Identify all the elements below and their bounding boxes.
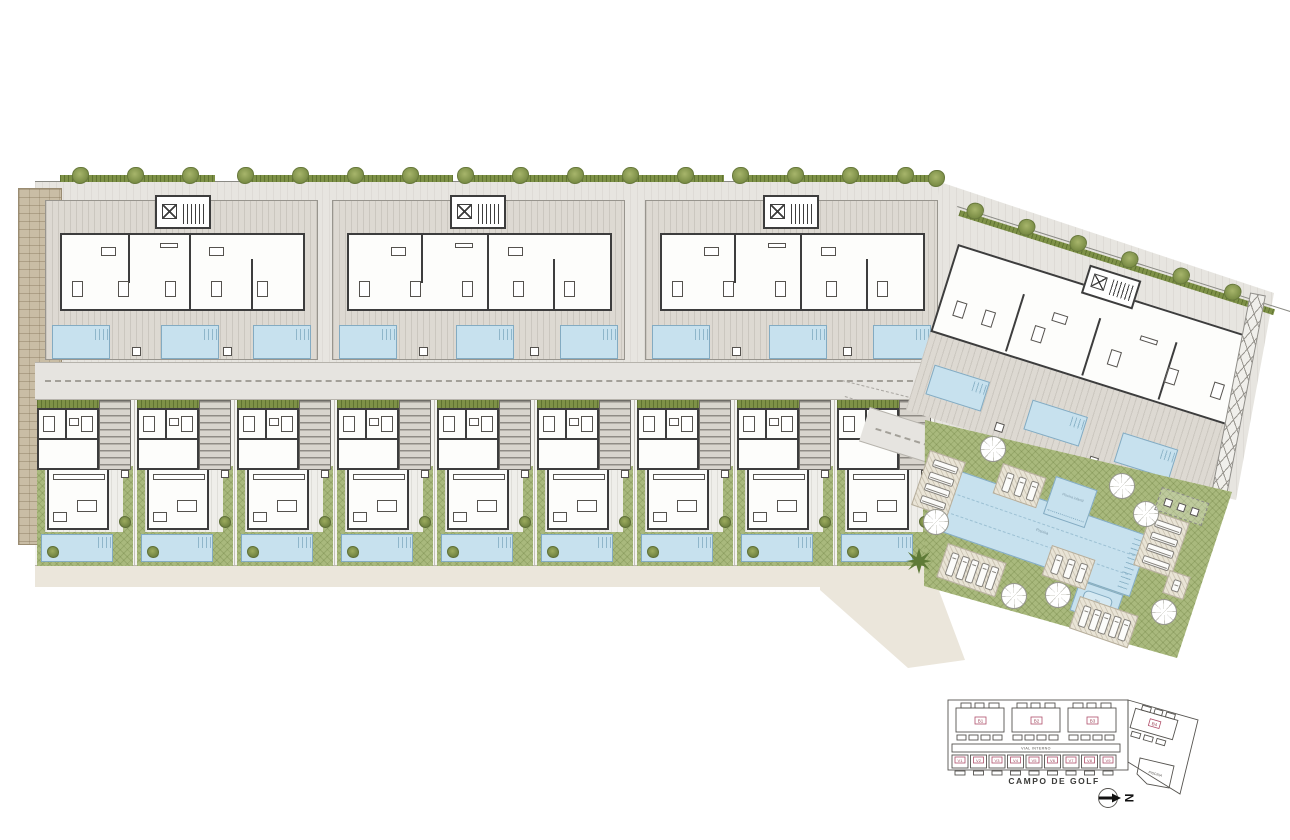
keymap-villa-garden bbox=[1011, 771, 1021, 775]
kitchen-counter-icon bbox=[553, 474, 605, 480]
sun-lounger-icon bbox=[1074, 562, 1088, 584]
sofa-icon bbox=[453, 512, 467, 522]
keymap-villa-label: V8 bbox=[1087, 758, 1093, 763]
keymap-terrace bbox=[1037, 735, 1046, 740]
interior-wall bbox=[365, 410, 367, 438]
shrub-icon bbox=[47, 546, 59, 558]
kitchen-counter-icon bbox=[768, 243, 786, 248]
dining-table-icon bbox=[1051, 312, 1068, 325]
bed-icon bbox=[581, 416, 593, 432]
block-core bbox=[763, 195, 819, 229]
bed-icon bbox=[481, 416, 493, 432]
north-letter: N bbox=[1122, 794, 1136, 803]
keymap-villa-label: V4 bbox=[1013, 758, 1019, 763]
interior-wall bbox=[339, 438, 397, 440]
bed-icon bbox=[826, 281, 837, 297]
bed-icon bbox=[952, 300, 967, 319]
interior-wall bbox=[665, 410, 667, 438]
shrub-icon bbox=[719, 516, 731, 528]
golf-course-label: CAMPO DE GOLF bbox=[1008, 776, 1099, 786]
villa-hedge bbox=[437, 400, 499, 408]
villa-living-block bbox=[47, 468, 109, 530]
elevator-icon bbox=[162, 204, 177, 219]
kitchen-counter-icon bbox=[1140, 335, 1159, 345]
villa-divider bbox=[234, 400, 235, 565]
dining-table-icon bbox=[77, 500, 97, 512]
pool-steps bbox=[95, 329, 108, 340]
villa-divider bbox=[734, 400, 735, 565]
bed-icon bbox=[443, 416, 455, 432]
keymap-terrace bbox=[1013, 735, 1022, 740]
interior-wall bbox=[39, 438, 97, 440]
villa-stairs bbox=[599, 400, 631, 470]
villa-bedroom-block bbox=[437, 408, 499, 470]
bed-icon bbox=[877, 281, 888, 297]
villa-living-block bbox=[647, 468, 709, 530]
keymap-villa-garden bbox=[1048, 771, 1058, 775]
shrub-icon bbox=[247, 546, 259, 558]
kitchen-counter-icon bbox=[853, 474, 905, 480]
apartment-block-1 bbox=[45, 200, 318, 360]
keymap-block-bump bbox=[989, 703, 999, 708]
villa-bedroom-block bbox=[237, 408, 299, 470]
pool-steps bbox=[598, 537, 611, 548]
bed-icon bbox=[211, 281, 222, 297]
bed-icon bbox=[81, 416, 93, 432]
dining-table-icon bbox=[477, 500, 497, 512]
bed-icon bbox=[643, 416, 655, 432]
villa-divider bbox=[334, 400, 335, 565]
dining-table-icon bbox=[508, 247, 523, 256]
villa-living-block bbox=[247, 468, 309, 530]
interior-wall bbox=[639, 438, 697, 440]
kitchen-counter-icon bbox=[253, 474, 305, 480]
apartment-block-2 bbox=[332, 200, 625, 360]
keymap-terrace bbox=[993, 735, 1002, 740]
villa-stairs bbox=[499, 400, 531, 470]
shrub-icon bbox=[419, 516, 431, 528]
keymap-villa-garden bbox=[992, 771, 1002, 775]
keymap-villa-garden bbox=[1066, 771, 1076, 775]
keymap-block-label: B2 bbox=[1034, 719, 1040, 724]
villa-hedge bbox=[837, 400, 899, 408]
bed-icon bbox=[165, 281, 176, 297]
gym-equipment-icon bbox=[1163, 498, 1173, 508]
villa-hedge bbox=[637, 400, 699, 408]
villa-bedroom-block bbox=[637, 408, 699, 470]
villa-living-block bbox=[147, 468, 209, 530]
keymap-villa-label: V5 bbox=[1032, 758, 1038, 763]
elevator-icon bbox=[457, 204, 472, 219]
interior-wall bbox=[239, 438, 297, 440]
keymap-terrace bbox=[957, 735, 966, 740]
keymap-villa-label: V2 bbox=[976, 758, 982, 763]
villa-bedroom-block bbox=[537, 408, 599, 470]
sofa-icon bbox=[753, 512, 767, 522]
keymap-terrace bbox=[1105, 735, 1114, 740]
apartment-slab bbox=[347, 233, 612, 311]
pool-steps bbox=[1160, 449, 1175, 462]
pool-steps bbox=[198, 537, 211, 548]
bath-icon bbox=[169, 418, 179, 426]
pool-steps bbox=[971, 381, 986, 394]
bath-icon bbox=[469, 418, 479, 426]
keymap-outline-wing bbox=[1128, 700, 1198, 794]
parasol-icon bbox=[1001, 583, 1027, 609]
shrub-icon bbox=[447, 546, 459, 558]
villa-hedge bbox=[37, 400, 99, 408]
keymap-block-bump bbox=[975, 703, 984, 708]
pool-steps bbox=[898, 537, 911, 548]
parasol-icon bbox=[1151, 599, 1177, 625]
interior-wall bbox=[553, 259, 555, 309]
planter bbox=[530, 347, 539, 356]
site-plan: PiscinaPiscina infantilSpaB1B2B3VIAL INT… bbox=[0, 0, 1290, 840]
gym-equipment-icon bbox=[1190, 507, 1200, 517]
interior-wall bbox=[165, 410, 167, 438]
kitchen-counter-icon bbox=[455, 243, 473, 248]
keymap-villa-label: V3 bbox=[995, 758, 1001, 763]
pool-steps bbox=[499, 329, 512, 340]
interior-wall bbox=[465, 410, 467, 438]
bed-icon bbox=[257, 281, 268, 297]
terrace-pool bbox=[560, 325, 618, 359]
shrub-icon bbox=[147, 546, 159, 558]
planter bbox=[621, 470, 629, 478]
keymap-pool-label: PISCINA bbox=[1148, 770, 1163, 778]
pool-steps bbox=[603, 329, 616, 340]
keymap-villa-label: V7 bbox=[1069, 758, 1075, 763]
shrub-icon bbox=[747, 546, 759, 558]
block-core bbox=[155, 195, 211, 229]
interior-wall bbox=[65, 410, 67, 438]
terrace-pool bbox=[52, 325, 110, 359]
parasol-icon bbox=[1109, 473, 1135, 499]
bed-icon bbox=[243, 416, 255, 432]
keymap-terrace bbox=[969, 735, 978, 740]
pool-steps bbox=[498, 537, 511, 548]
interior-wall bbox=[251, 259, 253, 309]
keymap-block-bump bbox=[961, 703, 971, 708]
pool-steps bbox=[695, 329, 708, 340]
interior-wall bbox=[421, 235, 423, 283]
pool-steps bbox=[98, 537, 111, 548]
interior-wall bbox=[128, 235, 130, 283]
bath-icon bbox=[69, 418, 79, 426]
terrace-pool bbox=[456, 325, 514, 359]
dining-table-icon bbox=[277, 500, 297, 512]
bed-icon bbox=[143, 416, 155, 432]
parasol-icon bbox=[980, 436, 1006, 462]
shrub-icon bbox=[119, 516, 131, 528]
interior-wall bbox=[265, 410, 267, 438]
pool-steps bbox=[798, 537, 811, 548]
keymap-terrace bbox=[1049, 735, 1058, 740]
villa-stairs bbox=[699, 400, 731, 470]
interior-wall bbox=[189, 235, 191, 309]
interior-wall bbox=[1005, 294, 1025, 352]
bath-icon bbox=[769, 418, 779, 426]
pool-steps bbox=[382, 329, 395, 340]
keymap-block4-group: B4 bbox=[1128, 704, 1179, 748]
villa-stairs bbox=[399, 400, 431, 470]
terrace-pool bbox=[339, 325, 397, 359]
bed-icon bbox=[118, 281, 129, 297]
villa-divider bbox=[834, 400, 835, 565]
bed-icon bbox=[462, 281, 473, 297]
bed-icon bbox=[72, 281, 83, 297]
villa-stairs bbox=[799, 400, 831, 470]
keymap-block-bump bbox=[1031, 703, 1040, 708]
keymap-block-bump bbox=[1017, 703, 1027, 708]
keymap-block-label: B3 bbox=[1090, 719, 1096, 724]
villa-hedge bbox=[737, 400, 799, 408]
walkway-south bbox=[35, 565, 935, 587]
sun-lounger-icon bbox=[1170, 579, 1181, 593]
sun-lounger-icon bbox=[1062, 558, 1076, 580]
planter bbox=[121, 470, 129, 478]
planter bbox=[721, 470, 729, 478]
planter bbox=[732, 347, 741, 356]
kitchen-counter-icon bbox=[453, 474, 505, 480]
villa-divider bbox=[134, 400, 135, 565]
bath-icon bbox=[369, 418, 379, 426]
keymap-terrace bbox=[1143, 735, 1153, 742]
kids-pool-label: Piscina infantil bbox=[1051, 489, 1092, 511]
core-stairs-icon bbox=[478, 204, 502, 224]
kitchen-counter-icon bbox=[160, 243, 178, 248]
bed-icon bbox=[381, 416, 393, 432]
planter bbox=[221, 470, 229, 478]
villa-living-block bbox=[747, 468, 809, 530]
kitchen-counter-icon bbox=[653, 474, 705, 480]
keymap-villa-label: V6 bbox=[1050, 758, 1056, 763]
keymap-terrace bbox=[1156, 738, 1166, 745]
shrub-icon bbox=[519, 516, 531, 528]
planter bbox=[421, 470, 429, 478]
shrub-icon bbox=[219, 516, 231, 528]
core-stairs-icon bbox=[791, 204, 815, 224]
interior-wall bbox=[866, 259, 868, 309]
bed-icon bbox=[781, 416, 793, 432]
terrace-pool bbox=[652, 325, 710, 359]
interior-wall bbox=[539, 438, 597, 440]
bed-icon bbox=[543, 416, 555, 432]
sofa-icon bbox=[153, 512, 167, 522]
bed-icon bbox=[281, 416, 293, 432]
interior-wall bbox=[565, 410, 567, 438]
keymap-villa-label: V9 bbox=[1106, 758, 1112, 763]
shrub-icon bbox=[819, 516, 831, 528]
villa-divider bbox=[534, 400, 535, 565]
interior-wall bbox=[487, 235, 489, 309]
villa-divider bbox=[634, 400, 635, 565]
villa-hedge bbox=[237, 400, 299, 408]
dining-table-icon bbox=[821, 247, 836, 256]
bed-icon bbox=[410, 281, 421, 297]
kitchen-counter-icon bbox=[353, 474, 405, 480]
keymap-terrace bbox=[1131, 731, 1141, 738]
keymap-terrace bbox=[1025, 735, 1034, 740]
bed-icon bbox=[181, 416, 193, 432]
terrace-pool bbox=[769, 325, 827, 359]
apartment-slab bbox=[60, 233, 305, 311]
pool-steps bbox=[296, 329, 309, 340]
villa-living-block bbox=[847, 468, 909, 530]
planter bbox=[419, 347, 428, 356]
sofa-icon bbox=[853, 512, 867, 522]
bed-icon bbox=[359, 281, 370, 297]
villa-stairs bbox=[299, 400, 331, 470]
road-main bbox=[35, 362, 940, 400]
pool-steps bbox=[398, 537, 411, 548]
interior-wall bbox=[139, 438, 197, 440]
bed-icon bbox=[1030, 325, 1045, 344]
bed-icon bbox=[672, 281, 683, 297]
planter bbox=[223, 347, 232, 356]
keymap-block-bump bbox=[1045, 703, 1055, 708]
shrub-icon bbox=[547, 546, 559, 558]
interior-wall bbox=[1081, 318, 1101, 376]
pool-steps bbox=[204, 329, 217, 340]
dining-table-icon bbox=[177, 500, 197, 512]
dining-table-icon bbox=[704, 247, 719, 256]
kitchen-counter-icon bbox=[153, 474, 205, 480]
dining-table-icon bbox=[101, 247, 116, 256]
pool-steps bbox=[698, 537, 711, 548]
keymap-villa-garden bbox=[1029, 771, 1039, 775]
interior-wall bbox=[739, 438, 797, 440]
dining-table-icon bbox=[677, 500, 697, 512]
interior-wall bbox=[800, 235, 802, 309]
bed-icon bbox=[513, 281, 524, 297]
shrub-icon bbox=[647, 546, 659, 558]
shrub-icon bbox=[319, 516, 331, 528]
dining-table-icon bbox=[209, 247, 224, 256]
kitchen-counter-icon bbox=[53, 474, 105, 480]
sofa-icon bbox=[353, 512, 367, 522]
shrub-icon bbox=[847, 546, 859, 558]
dining-table-icon bbox=[577, 500, 597, 512]
bed-icon bbox=[843, 416, 855, 432]
road-centerline bbox=[45, 380, 923, 382]
keymap-block-bump bbox=[1101, 703, 1111, 708]
bed-icon bbox=[743, 416, 755, 432]
gym-equipment-icon bbox=[1176, 502, 1186, 512]
sun-lounger-icon bbox=[1013, 476, 1027, 498]
interior-wall bbox=[734, 235, 736, 283]
bed-icon bbox=[1107, 349, 1122, 368]
keymap-villa-garden bbox=[974, 771, 984, 775]
keymap-road-label: VIAL INTERNO bbox=[1021, 747, 1051, 751]
bed-icon bbox=[981, 309, 996, 328]
keymap-block-bump bbox=[1087, 703, 1096, 708]
parasol-icon bbox=[1045, 582, 1071, 608]
terrace-pool bbox=[253, 325, 311, 359]
villa-bedroom-block bbox=[337, 408, 399, 470]
pool-steps bbox=[1069, 416, 1084, 429]
villa-bedroom-block bbox=[137, 408, 199, 470]
block-core bbox=[450, 195, 506, 229]
bed-icon bbox=[681, 416, 693, 432]
location-keymap: B1B2B3VIAL INTERNOV1V2V3V4V5V6V7V8V9B4PI… bbox=[942, 694, 1242, 812]
keymap-villa-garden bbox=[955, 771, 965, 775]
bed-icon bbox=[43, 416, 55, 432]
keymap-villa-garden bbox=[1103, 771, 1113, 775]
bed-icon bbox=[775, 281, 786, 297]
keymap-villa-garden bbox=[1085, 771, 1095, 775]
pool-steps bbox=[812, 329, 825, 340]
core-stairs-icon bbox=[1109, 279, 1136, 301]
villa-living-block bbox=[447, 468, 509, 530]
keymap-terrace bbox=[981, 735, 990, 740]
sofa-icon bbox=[653, 512, 667, 522]
villa-hedge bbox=[337, 400, 399, 408]
elevator-icon bbox=[770, 204, 785, 219]
pool-steps bbox=[298, 537, 311, 548]
planter bbox=[821, 470, 829, 478]
keymap-terrace bbox=[1069, 735, 1078, 740]
bed-icon bbox=[564, 281, 575, 297]
core-stairs-icon bbox=[183, 204, 207, 224]
villa-hedge bbox=[537, 400, 599, 408]
shrub-icon bbox=[347, 546, 359, 558]
sofa-icon bbox=[53, 512, 67, 522]
villa-living-block bbox=[547, 468, 609, 530]
planter bbox=[521, 470, 529, 478]
sofa-icon bbox=[253, 512, 267, 522]
bed-icon bbox=[343, 416, 355, 432]
dining-table-icon bbox=[391, 247, 406, 256]
sofa-icon bbox=[553, 512, 567, 522]
dining-table-icon bbox=[377, 500, 397, 512]
bed-icon bbox=[723, 281, 734, 297]
sun-lounger-icon bbox=[1050, 554, 1064, 576]
dining-table-icon bbox=[777, 500, 797, 512]
terrace-pool bbox=[161, 325, 219, 359]
sun-lounger-icon bbox=[1025, 480, 1039, 502]
keymap-villa-label: V1 bbox=[958, 758, 964, 763]
villa-hedge bbox=[137, 400, 199, 408]
planter bbox=[843, 347, 852, 356]
bed-icon bbox=[1210, 382, 1225, 401]
keymap-block-bump bbox=[1073, 703, 1083, 708]
bath-icon bbox=[269, 418, 279, 426]
keymap-terrace bbox=[1093, 735, 1102, 740]
interior-wall bbox=[439, 438, 497, 440]
villa-stairs bbox=[99, 400, 131, 470]
parasol-icon bbox=[923, 509, 949, 535]
villa-living-block bbox=[347, 468, 409, 530]
sun-lounger-icon bbox=[1001, 472, 1015, 494]
villa-bedroom-block bbox=[737, 408, 799, 470]
apartment-block-3 bbox=[645, 200, 938, 360]
planter bbox=[321, 470, 329, 478]
planter bbox=[132, 347, 141, 356]
dining-table-icon bbox=[877, 500, 897, 512]
villa-bedroom-block bbox=[37, 408, 99, 470]
apartment-slab bbox=[660, 233, 925, 311]
bath-icon bbox=[569, 418, 579, 426]
villa-divider bbox=[434, 400, 435, 565]
keymap-block-label: B1 bbox=[978, 719, 984, 724]
elevator-icon bbox=[1090, 273, 1108, 291]
keymap-terrace bbox=[1081, 735, 1090, 740]
bath-icon bbox=[669, 418, 679, 426]
shrub-icon bbox=[619, 516, 631, 528]
interior-wall bbox=[765, 410, 767, 438]
villa-stairs bbox=[199, 400, 231, 470]
